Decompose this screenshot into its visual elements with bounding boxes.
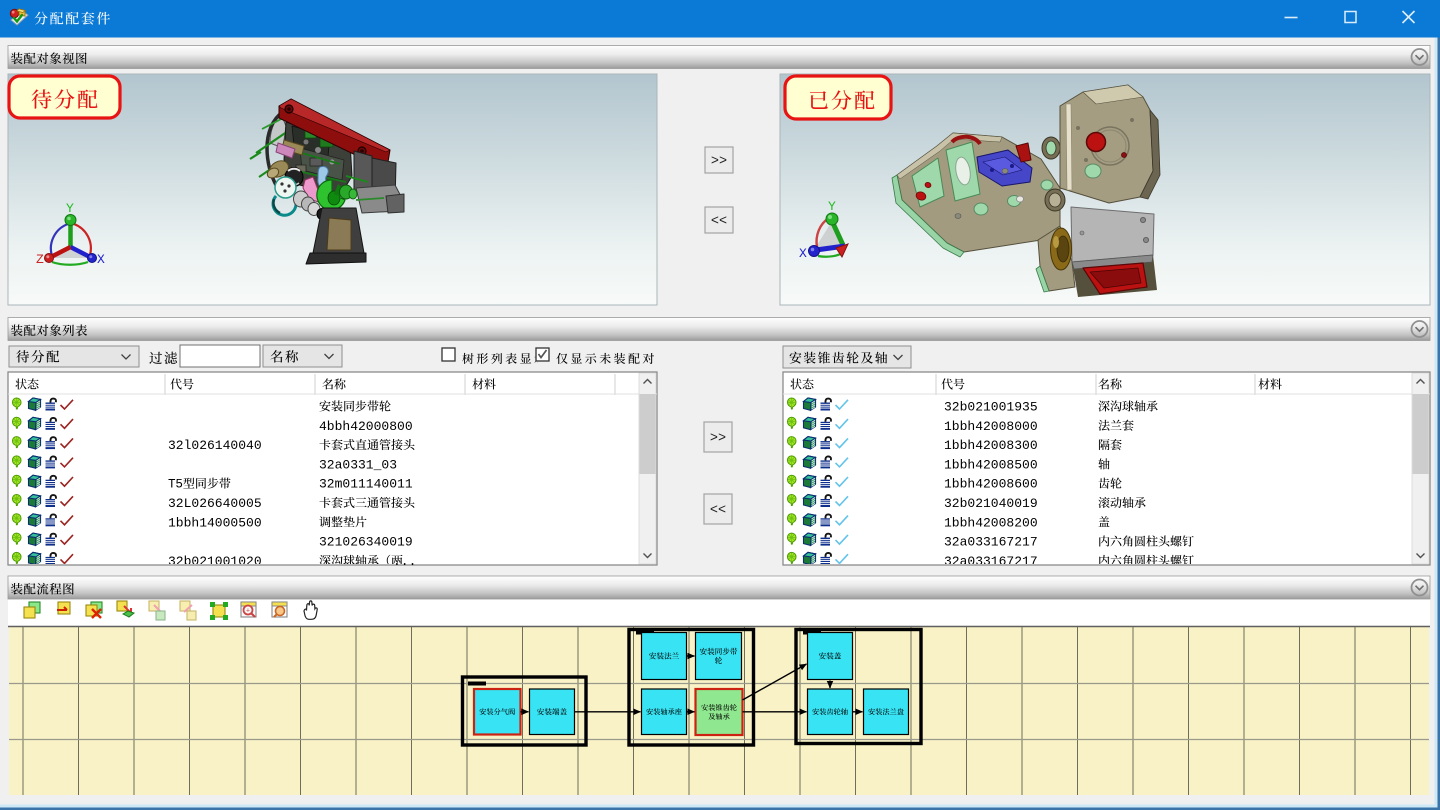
svg-text:+: + [246,608,250,616]
svg-text:1bbh42008200: 1bbh42008200 [944,515,1038,530]
svg-text:<<: << [711,215,727,230]
svg-text:Y: Y [66,201,74,216]
svg-text:321026340019: 321026340019 [319,535,413,550]
svg-text:1bbh14000500: 1bbh14000500 [168,515,262,530]
svg-text:X: X [799,246,807,261]
svg-text:32b021001935: 32b021001935 [944,400,1038,415]
svg-text:32l026140040: 32l026140040 [168,438,262,453]
svg-text:1bbh42008000: 1bbh42008000 [944,419,1038,434]
svg-text:1bbh42008300: 1bbh42008300 [944,438,1038,453]
svg-text:>>: >> [711,155,727,170]
svg-text:1bbh42008500: 1bbh42008500 [944,457,1038,472]
svg-text:32a0331_03: 32a0331_03 [319,457,397,472]
svg-text:1bbh42008600: 1bbh42008600 [944,477,1038,492]
svg-text:32m011140011: 32m011140011 [319,477,413,492]
svg-text:32a033167217: 32a033167217 [944,535,1038,550]
svg-text:>>: >> [710,432,726,447]
svg-text:5: 5 [175,478,183,492]
svg-text:Z: Z [36,252,44,267]
svg-text:<<: << [710,504,726,519]
svg-text:32b021040019: 32b021040019 [944,496,1038,511]
svg-text:4bbh42000800: 4bbh42000800 [319,419,413,434]
svg-text:X: X [97,252,105,267]
svg-text:Y: Y [828,199,836,214]
svg-text:...: ... [393,554,416,569]
svg-text:32L026640005: 32L026640005 [168,496,262,511]
